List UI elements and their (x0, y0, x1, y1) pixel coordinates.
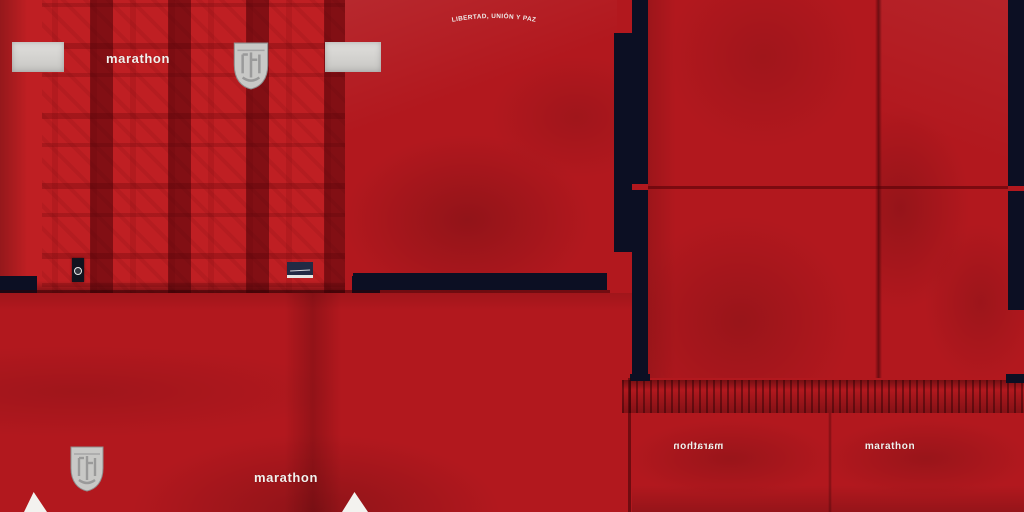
shorts-divider-seam (628, 378, 631, 512)
fef-crest-icon (66, 446, 108, 492)
seam-red-notch-left (632, 184, 648, 190)
care-tag (72, 258, 84, 282)
shirt-front-damask-pattern (42, 0, 352, 293)
brand-label-shorts-back: marathon (858, 441, 922, 452)
care-tag-logo-icon (74, 267, 82, 275)
waistband-navy-left (630, 374, 650, 381)
separator-navy-column-wide (614, 33, 632, 252)
sleeve-seam (875, 0, 882, 378)
kit-texture-sheet: marathon LIBERTAD, UNIÓN Y PAZ (0, 0, 1024, 512)
brand-label-shorts-back-mirrored: marathon (668, 441, 728, 452)
back-motto: LIBERTAD, UNIÓN Y PAZ (436, 4, 552, 30)
shoulder-patch-right (325, 42, 381, 72)
brand-label-front: marathon (96, 51, 180, 66)
shirt-back-panel (345, 0, 617, 293)
brand-label-shorts-front: marathon (246, 470, 326, 485)
jock-tag (287, 262, 313, 278)
seam-red-notch-right (1008, 186, 1024, 191)
waistband-navy-right (1006, 374, 1024, 383)
sleeve-horizontal-seam (648, 186, 1024, 189)
shoulder-patch-left (12, 42, 64, 72)
waistband-rib (622, 380, 1024, 413)
sleeve-panel-left (648, 0, 878, 378)
shorts-front-top-seam (0, 290, 610, 293)
back-hem-navy-band (353, 273, 607, 290)
shorts-back-center-seam (828, 413, 832, 512)
sleeve-panel-right (878, 0, 1024, 378)
fef-crest-icon (232, 42, 270, 90)
right-edge-navy-strip (1008, 0, 1024, 310)
jock-tag-script-icon (290, 265, 310, 271)
svg-text:LIBERTAD, UNIÓN Y PAZ: LIBERTAD, UNIÓN Y PAZ (451, 11, 537, 24)
